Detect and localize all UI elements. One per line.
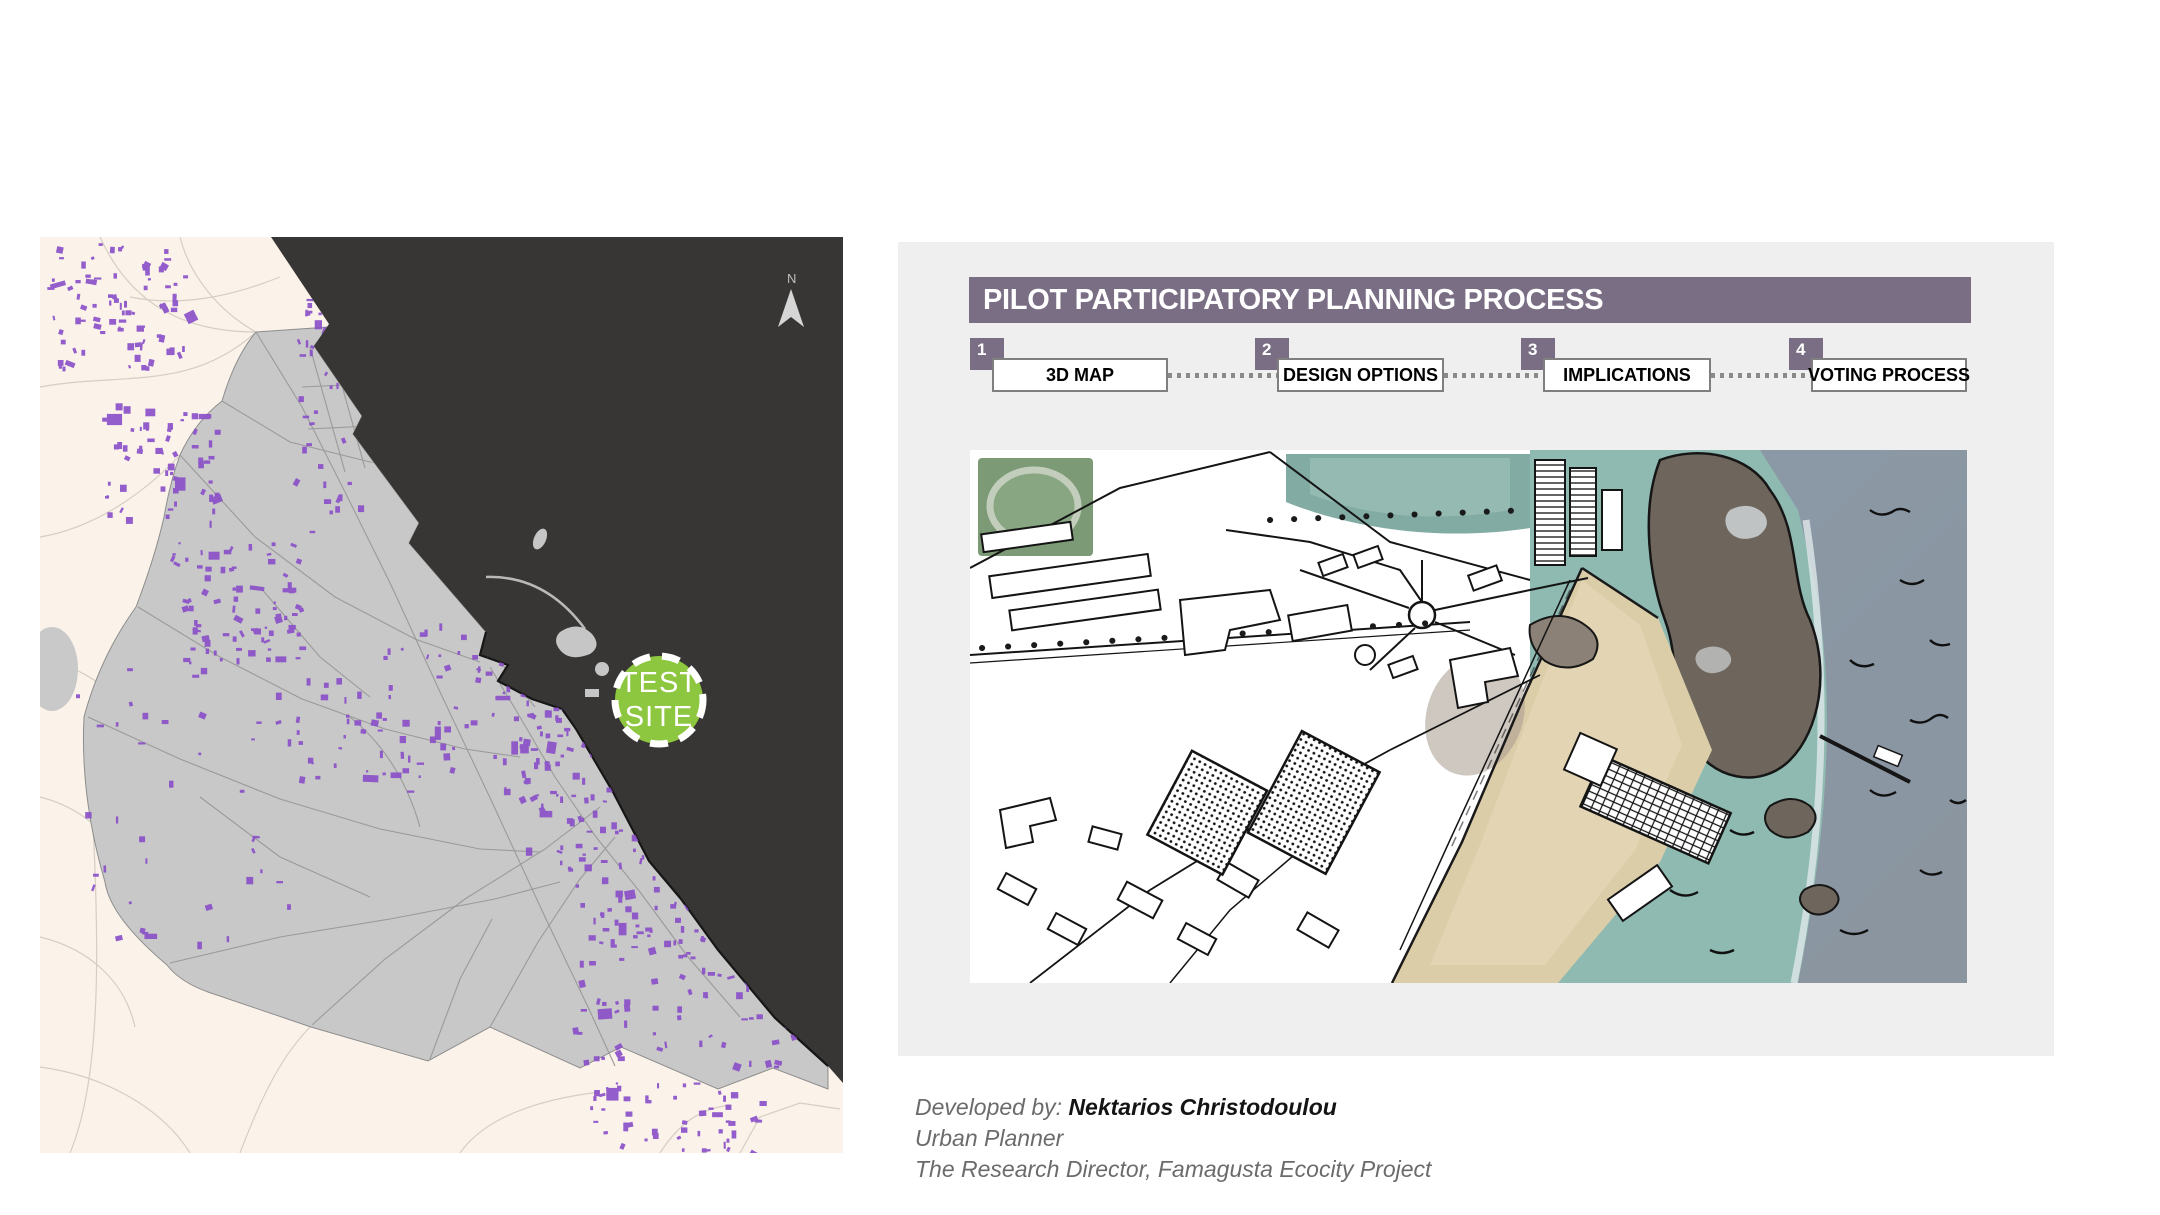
step-box-3d-map: 3D MAP (992, 358, 1168, 392)
aerial-sketch-illustration (970, 450, 1967, 983)
step-connector-3 (1711, 373, 1811, 378)
credits-line-role: Urban Planner (915, 1123, 1775, 1154)
svg-text:N: N (787, 271, 796, 286)
test-site-marker: TEST SITE (615, 656, 703, 744)
sketch-graphic (970, 450, 1967, 983)
credits-line-affiliation: The Research Director, Famagusta Ecocity… (915, 1154, 1775, 1185)
process-title-bar: PILOT PARTICIPATORY PLANNING PROCESS (969, 277, 1971, 323)
step-connector-2 (1444, 373, 1543, 378)
process-panel: PILOT PARTICIPATORY PLANNING PROCESS 1 3… (898, 242, 2054, 1056)
roundabout (1409, 602, 1435, 628)
credits-block: Developed by: Nektarios Christodoulou Ur… (915, 1092, 1775, 1185)
developed-by-label: Developed by: (915, 1094, 1068, 1120)
step-connector-1 (1168, 373, 1277, 378)
map-graphic: N TEST SITE (40, 237, 843, 1153)
site-location-map: N TEST SITE (40, 237, 843, 1153)
step-box-voting-process: VOTING PROCESS (1811, 358, 1967, 392)
presentation-slide: N TEST SITE PILOT PARTICIPATORY PLANNING… (0, 0, 2160, 1215)
test-site-label-line2: SITE (625, 701, 693, 733)
step-box-design-options: DESIGN OPTIONS (1277, 358, 1444, 392)
developer-name: Nektarios Christodoulou (1068, 1094, 1336, 1120)
credits-line-developed-by: Developed by: Nektarios Christodoulou (915, 1092, 1775, 1123)
step-box-implications: IMPLICATIONS (1543, 358, 1711, 392)
test-site-label-line1: TEST (620, 667, 698, 699)
